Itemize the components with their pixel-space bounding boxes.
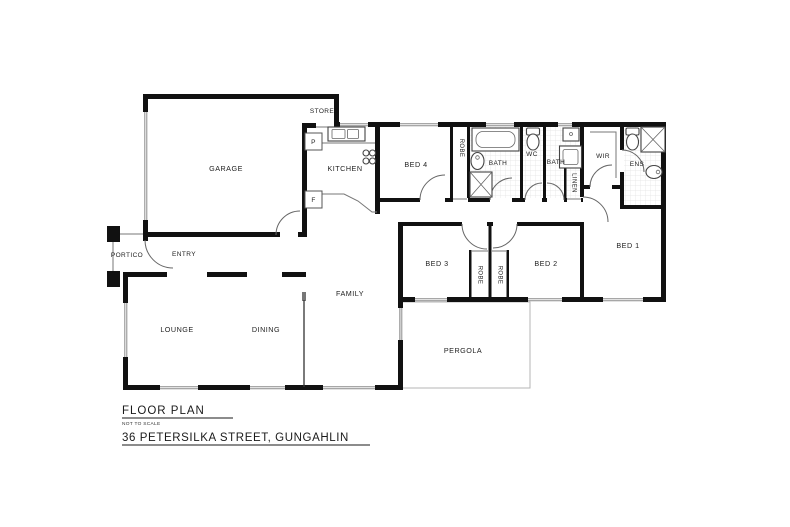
pergola-outline — [400, 302, 530, 388]
room-label-store: STORE — [310, 108, 335, 115]
shower-bath — [470, 172, 492, 197]
bathtub — [472, 128, 519, 151]
room-label-bath1: BATH — [489, 160, 507, 167]
room-label-wir: WIR — [596, 153, 610, 160]
room-label-pergola: PERGOLA — [444, 346, 482, 355]
room-label-ens: ENS — [630, 161, 645, 168]
room-label-bath2: BATH — [547, 159, 565, 166]
exterior-walls — [123, 94, 666, 390]
toilet-wc — [527, 128, 540, 150]
shower-ensuite — [641, 127, 665, 152]
room-label-bed3: BED 3 — [425, 259, 448, 268]
room-label-robe-bed2: ROBE — [497, 266, 503, 285]
cooktop — [363, 150, 376, 164]
basin-bath2-small — [563, 128, 579, 141]
fridge-label: F — [311, 197, 315, 204]
title-block: FLOOR PLAN NOT TO SCALE 36 PETERSILKA ST… — [122, 405, 370, 445]
room-label-robe-bed4: ROBE — [458, 139, 464, 158]
room-label-bed1: BED 1 — [616, 241, 639, 250]
basin-ensuite — [646, 166, 662, 179]
room-label-bed2: BED 2 — [534, 259, 557, 268]
room-label-family: FAMILY — [336, 289, 364, 298]
pantry-cupboard: P — [305, 133, 322, 150]
fridge-space: F — [305, 191, 322, 208]
floor-plan-drawing: P F GARAGE STORE — [0, 0, 790, 527]
room-label-lounge: LOUNGE — [160, 325, 193, 334]
room-label-wc: WC — [526, 151, 538, 158]
room-label-dining: DINING — [252, 325, 280, 334]
room-label-garage: GARAGE — [209, 164, 243, 173]
room-label-kitchen: KITCHEN — [327, 164, 362, 173]
plan-subtitle: NOT TO SCALE — [122, 421, 161, 427]
basin-bath — [471, 153, 484, 170]
pantry-label: P — [311, 139, 316, 146]
room-label-portico: PORTICO — [111, 252, 143, 259]
plan-address: 36 PETERSILKA STREET, GUNGAHLIN — [122, 432, 349, 444]
kitchen-sink — [328, 127, 365, 141]
room-label-linen: LINEN — [571, 173, 577, 193]
room-label-robe-bed3: ROBE — [477, 266, 483, 285]
toilet-ensuite — [626, 128, 639, 150]
room-label-entry: ENTRY — [172, 251, 196, 258]
floor-plan-page: P F GARAGE STORE — [0, 0, 790, 527]
plan-title: FLOOR PLAN — [122, 405, 205, 417]
room-label-bed4: BED 4 — [404, 160, 427, 169]
